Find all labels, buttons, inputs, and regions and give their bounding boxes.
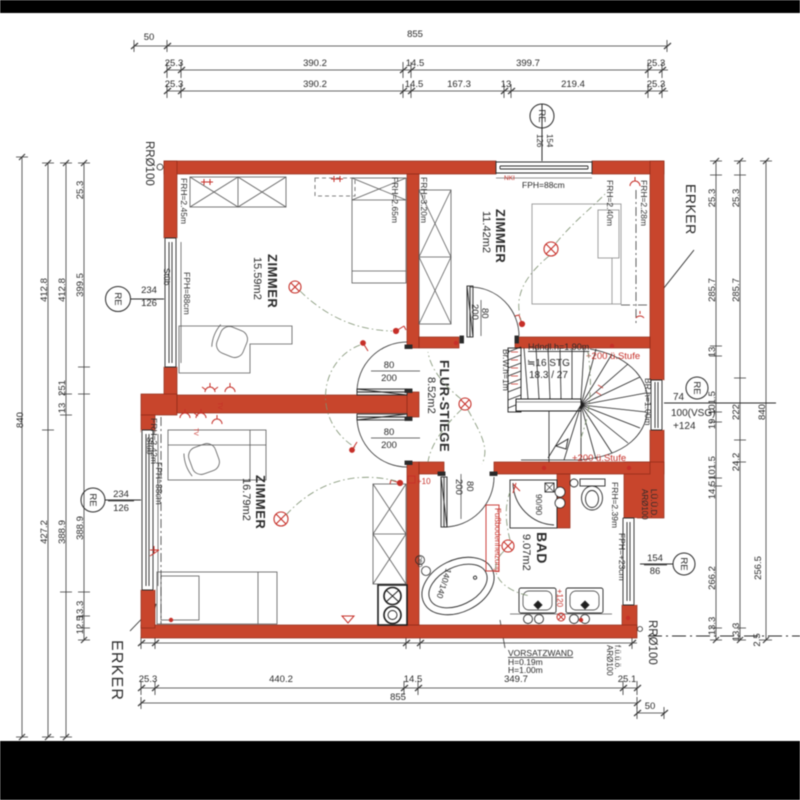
svg-text:219.4: 219.4 (561, 79, 585, 90)
svg-text:RE: RE (112, 292, 123, 305)
svg-text:BAD: BAD (534, 532, 550, 564)
svg-text:13.3: 13.3 (707, 617, 718, 636)
svg-text:FPH=88cm: FPH=88cm (154, 462, 164, 505)
svg-text:86: 86 (650, 566, 661, 577)
svg-text:TV: TV (192, 428, 198, 436)
svg-text:222: 222 (731, 404, 742, 420)
svg-text:14.5: 14.5 (405, 79, 424, 90)
svg-text:100(VSG): 100(VSG) (671, 408, 715, 419)
svg-text:399.7: 399.7 (516, 58, 540, 69)
svg-text:ERKER: ERKER (108, 640, 125, 701)
svg-text:855: 855 (390, 692, 406, 703)
svg-text:14.5: 14.5 (707, 481, 718, 500)
svg-text:8.52m2: 8.52m2 (425, 377, 437, 414)
svg-text:ERKER: ERKER (683, 184, 699, 235)
svg-text:12.5: 12.5 (75, 616, 86, 635)
svg-text:NKI: NKI (504, 175, 515, 182)
svg-text:TV: TV (216, 402, 222, 410)
svg-text:RE: RE (536, 109, 547, 122)
svg-text:13: 13 (501, 79, 512, 90)
svg-text:FRH=2.28m: FRH=2.28m (639, 180, 649, 226)
svg-text:25.3: 25.3 (731, 189, 742, 208)
svg-text:Br.W.h=1m: Br.W.h=1m (501, 349, 511, 391)
svg-text:f.ü.ü.ö.: f.ü.ü.ö. (613, 645, 622, 669)
svg-text:855: 855 (407, 29, 423, 40)
svg-text:25.3: 25.3 (75, 181, 86, 200)
svg-text:50: 50 (144, 32, 155, 43)
svg-text:90/90: 90/90 (534, 494, 544, 516)
svg-text:154: 154 (545, 134, 554, 148)
svg-text:349.7: 349.7 (504, 674, 528, 685)
svg-text:200: 200 (381, 440, 397, 451)
svg-text:412.8: 412.8 (57, 278, 68, 302)
svg-text:RE: RE (678, 557, 689, 570)
svg-text:FRH=2.45m: FRH=2.45m (179, 178, 189, 224)
svg-text:FLUR-STIEGE: FLUR-STIEGE (437, 360, 452, 452)
svg-text:200: 200 (469, 304, 480, 320)
svg-text:+200 ü.Stufe: +200 ü.Stufe (586, 351, 640, 362)
svg-text:840: 840 (757, 404, 768, 420)
svg-text:388.9: 388.9 (57, 520, 68, 544)
svg-text:15.59m2: 15.59m2 (251, 257, 263, 300)
svg-text:25.3: 25.3 (165, 58, 184, 69)
svg-text:RRØ100: RRØ100 (646, 620, 658, 665)
svg-text:25.3: 25.3 (139, 674, 158, 685)
svg-text:FPH=88cm: FPH=88cm (522, 180, 565, 190)
svg-text:ZIMMER: ZIMMER (493, 209, 508, 263)
svg-text:440.2: 440.2 (269, 674, 293, 685)
svg-text:285.7: 285.7 (707, 278, 718, 302)
svg-text:388.9: 388.9 (75, 516, 86, 540)
svg-text:427.2: 427.2 (39, 520, 50, 544)
svg-text:80: 80 (384, 360, 395, 371)
svg-text:LÜ.Ü.D.: LÜ.Ü.D. (649, 489, 658, 517)
svg-text:14.5: 14.5 (404, 674, 423, 685)
svg-text:266.2: 266.2 (707, 566, 718, 590)
svg-text:25.3: 25.3 (165, 79, 184, 90)
svg-text:80: 80 (464, 481, 475, 492)
svg-text:74: 74 (673, 392, 685, 403)
svg-text:Stüb: Stüb (162, 268, 172, 286)
svg-text:+10: +10 (417, 477, 431, 486)
svg-text:80: 80 (384, 427, 395, 438)
svg-text:FRH=2.65m: FRH=2.65m (390, 177, 400, 223)
svg-text:RE: RE (691, 381, 702, 394)
svg-text:200: 200 (453, 479, 464, 495)
svg-text:FPH=+23cm: FPH=+23cm (617, 533, 627, 581)
svg-text:RRØ100: RRØ100 (143, 141, 155, 186)
svg-text:BR.h=1.00m: BR.h=1.00m (643, 378, 653, 426)
svg-text:390.2: 390.2 (303, 79, 327, 90)
svg-text:154: 154 (647, 553, 663, 564)
svg-text:13: 13 (57, 403, 68, 414)
svg-text:16.79m2: 16.79m2 (240, 478, 252, 521)
svg-text:25.3: 25.3 (647, 79, 666, 90)
svg-text:18.3 / 27: 18.3 / 27 (529, 370, 568, 381)
svg-text:14.5: 14.5 (406, 58, 425, 69)
svg-text:Fußbodenheizung: Fußbodenheizung (493, 508, 502, 573)
svg-text:234: 234 (141, 285, 157, 296)
svg-text:13.3: 13.3 (731, 623, 742, 642)
svg-text:390.2: 390.2 (303, 58, 327, 69)
svg-text:840: 840 (15, 412, 26, 428)
svg-text:25.1: 25.1 (618, 674, 637, 685)
svg-text:251: 251 (57, 380, 68, 396)
svg-text:H=1.00m: H=1.00m (508, 665, 543, 675)
svg-text:19: 19 (707, 419, 718, 430)
svg-text:126: 126 (535, 134, 544, 148)
svg-text:200: 200 (381, 373, 397, 384)
svg-text:167.3: 167.3 (447, 79, 471, 90)
svg-text:126: 126 (141, 298, 157, 309)
svg-text:234: 234 (113, 489, 129, 500)
svg-text:+200 ü.Stufe: +200 ü.Stufe (572, 453, 626, 464)
svg-text:+124: +124 (673, 421, 696, 432)
svg-text:399.5: 399.5 (75, 273, 86, 297)
svg-text:+120: +120 (555, 589, 564, 608)
svg-text:50: 50 (645, 701, 656, 712)
svg-text:ZIMMER: ZIMMER (265, 254, 280, 308)
svg-text:256.5: 256.5 (753, 556, 764, 580)
svg-text:OBÖ: OBÖ (416, 556, 423, 567)
svg-text:13: 13 (707, 347, 718, 358)
svg-text:412.8: 412.8 (39, 278, 50, 302)
svg-text:ARØ100: ARØ100 (640, 489, 649, 520)
svg-text:FPH=88cm: FPH=88cm (182, 272, 192, 315)
svg-text:RE: RE (87, 493, 98, 506)
svg-text:≒16 STG: ≒16 STG (527, 358, 570, 369)
svg-text:25.3: 25.3 (707, 189, 718, 208)
svg-text:25.3: 25.3 (647, 58, 666, 69)
svg-text:ZIMMER: ZIMMER (253, 475, 268, 529)
svg-text:Stüb: Stüb (145, 437, 155, 455)
svg-text:FRH=2.39m: FRH=2.39m (610, 482, 620, 528)
svg-text:FRH=2.40m: FRH=2.40m (605, 180, 615, 226)
svg-text:126: 126 (113, 503, 129, 514)
svg-text:FRH=3.20m: FRH=3.20m (419, 177, 429, 223)
svg-text:11.42m2: 11.42m2 (480, 211, 492, 253)
svg-text:285.7: 285.7 (731, 278, 742, 302)
svg-text:9.07m2: 9.07m2 (520, 534, 532, 571)
svg-text:2.5: 2.5 (752, 633, 763, 646)
svg-text:Hdndl.h=1.90m: Hdndl.h=1.90m (528, 342, 589, 352)
svg-text:24.2: 24.2 (731, 453, 742, 472)
svg-text:101.5: 101.5 (707, 456, 718, 480)
svg-text:ARØ100: ARØ100 (605, 645, 614, 676)
